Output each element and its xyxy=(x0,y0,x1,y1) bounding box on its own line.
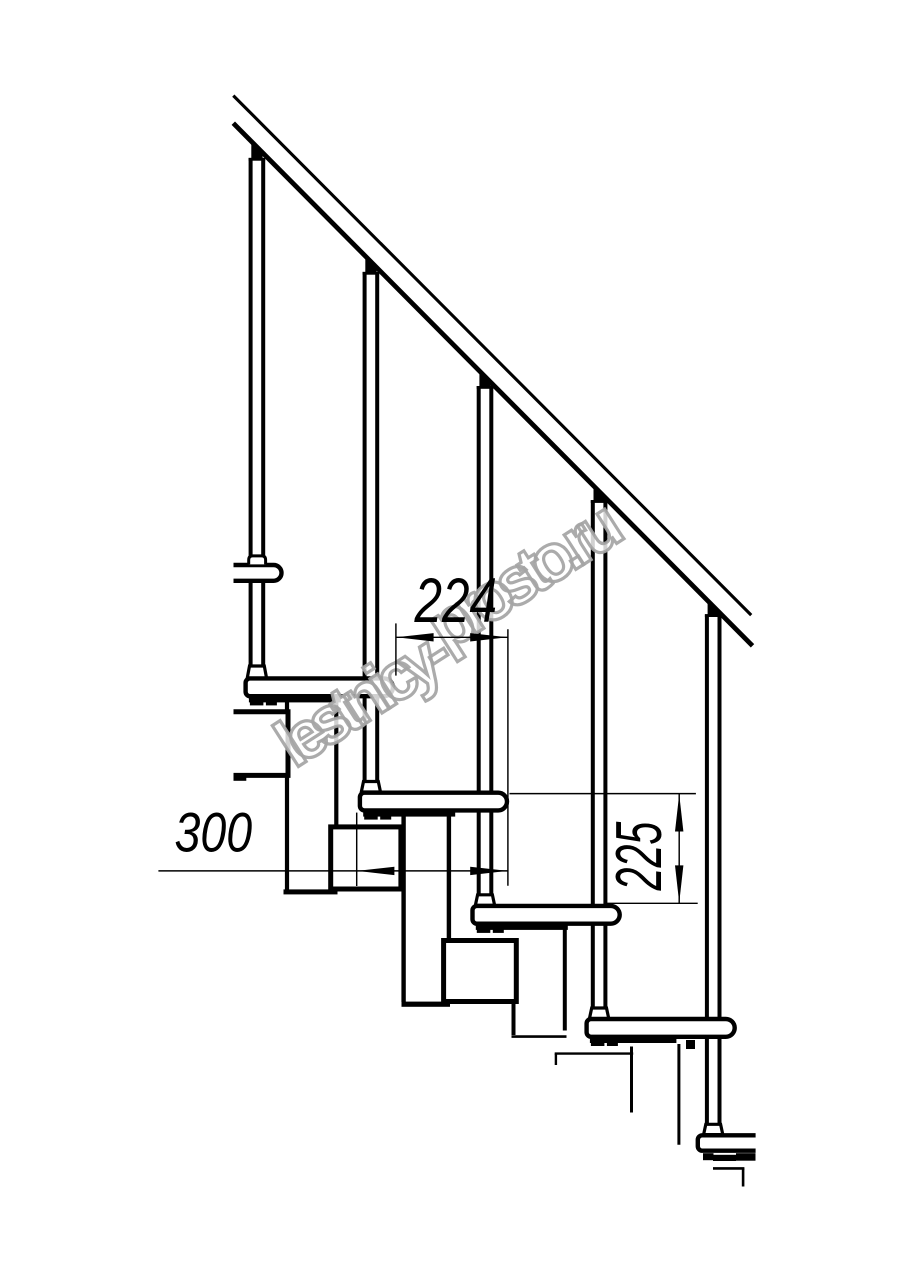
svg-text:224: 224 xyxy=(414,566,497,636)
svg-text:225: 225 xyxy=(604,821,675,891)
svg-text:300: 300 xyxy=(175,800,253,863)
